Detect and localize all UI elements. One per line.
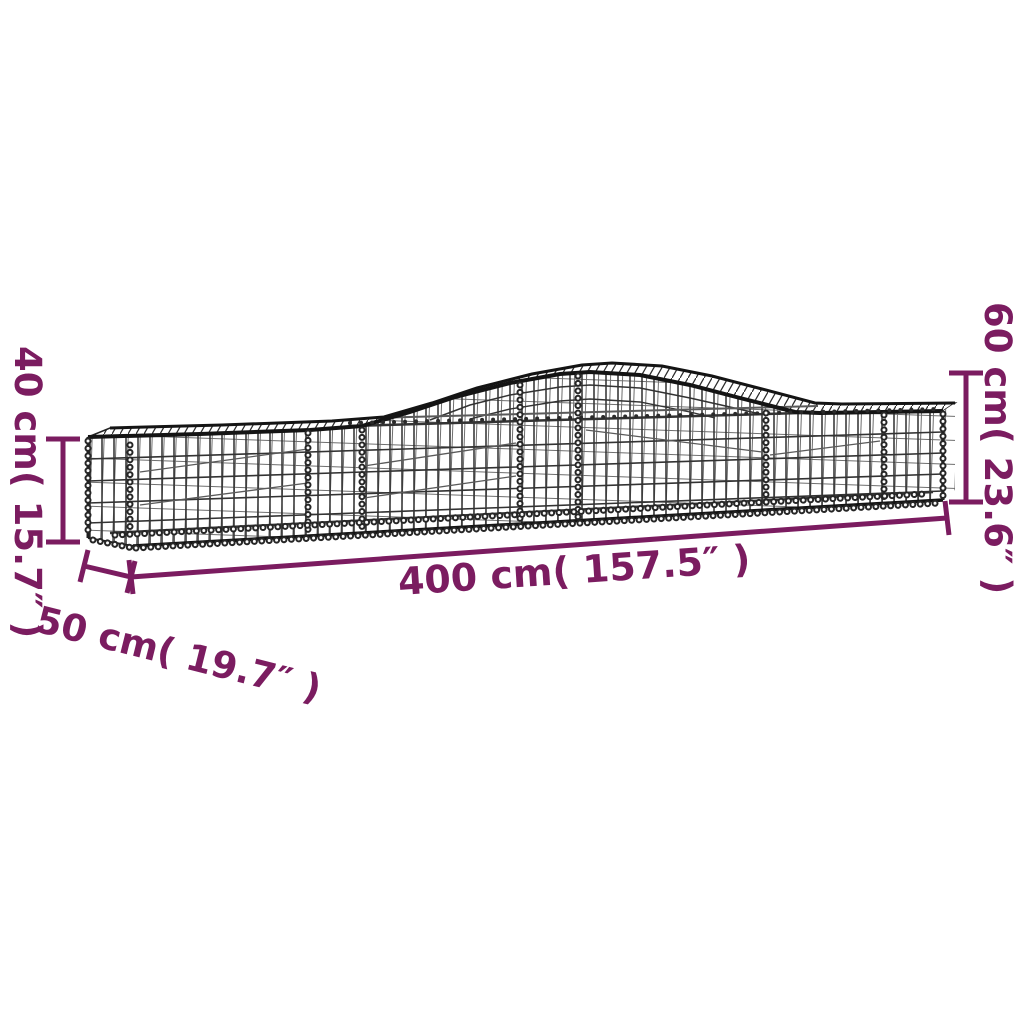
product-dimension-diagram: 40 cm( 15.7″ ) 60 cm( 23.6″ ) 400 cm( 15… (0, 0, 1024, 1024)
gabion-basket-illustration (0, 0, 1024, 1024)
basket-front-face (88, 372, 943, 546)
label-height-left: 40 cm( 15.7″ ) (4, 346, 50, 606)
label-height-right: 60 cm( 23.6″ ) (974, 302, 1020, 572)
dimension-height-left (46, 439, 80, 542)
dimension-depth (80, 550, 135, 593)
